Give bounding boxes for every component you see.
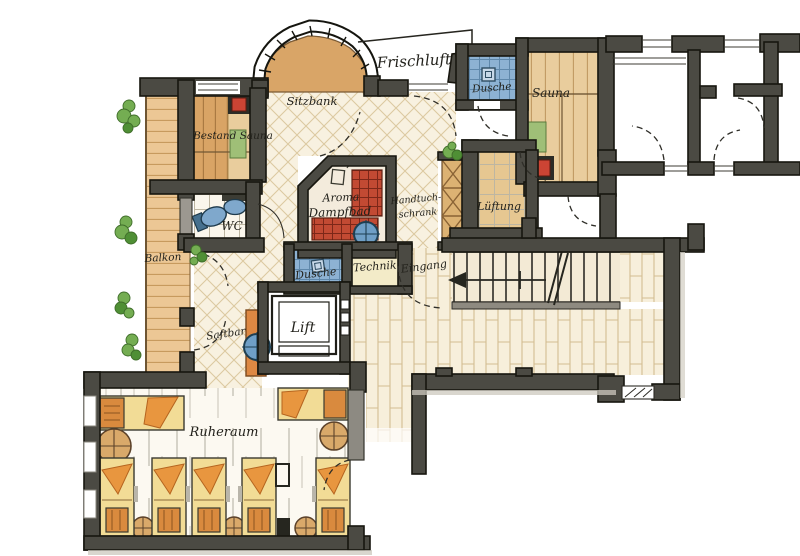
lounger <box>192 458 230 536</box>
lounger <box>96 458 138 536</box>
lift-door <box>341 300 349 309</box>
shower-icon <box>482 68 495 81</box>
plant-icon <box>115 292 134 318</box>
label-bestand-sauna: Bestand Sauna <box>192 130 273 142</box>
terrace <box>358 30 472 54</box>
label-frischluft: Frischluft <box>375 50 452 72</box>
window-sill <box>180 198 192 236</box>
door-arc <box>568 196 596 226</box>
lounger <box>312 458 350 536</box>
door-arc <box>738 98 764 128</box>
plant-icon <box>122 334 141 360</box>
label-balkon: Balkon <box>143 251 182 265</box>
lounger <box>238 458 276 536</box>
label-wc: WC <box>221 219 243 233</box>
window <box>84 396 96 426</box>
label-sauna: Sauna <box>532 86 570 100</box>
bay-window <box>258 26 374 92</box>
floor-plan: Frischluft Sitzbank Bestand Sauna Dusche… <box>0 0 800 556</box>
lounger <box>278 388 348 420</box>
label-ruheraum: Ruheraum <box>189 425 259 440</box>
lounger <box>152 458 190 536</box>
side-table <box>320 422 348 450</box>
window <box>84 490 96 518</box>
label-aroma: Aroma <box>321 190 359 204</box>
label-lift: Lift <box>290 320 316 336</box>
lounger <box>100 396 184 430</box>
plant-icon <box>115 216 137 244</box>
label-lueftung: Lüftung <box>476 200 521 213</box>
floor-plan-page: Frischluft Sitzbank Bestand Sauna Dusche… <box>0 0 800 556</box>
door-arc <box>714 130 740 160</box>
window-hatch <box>622 386 654 399</box>
plant-icon <box>117 100 140 133</box>
stairs <box>448 251 620 309</box>
label-sitzbank: Sitzbank <box>287 94 338 108</box>
window <box>84 442 96 472</box>
label-dampfbad: Dampfbad <box>307 204 372 220</box>
door-arc <box>632 126 664 160</box>
